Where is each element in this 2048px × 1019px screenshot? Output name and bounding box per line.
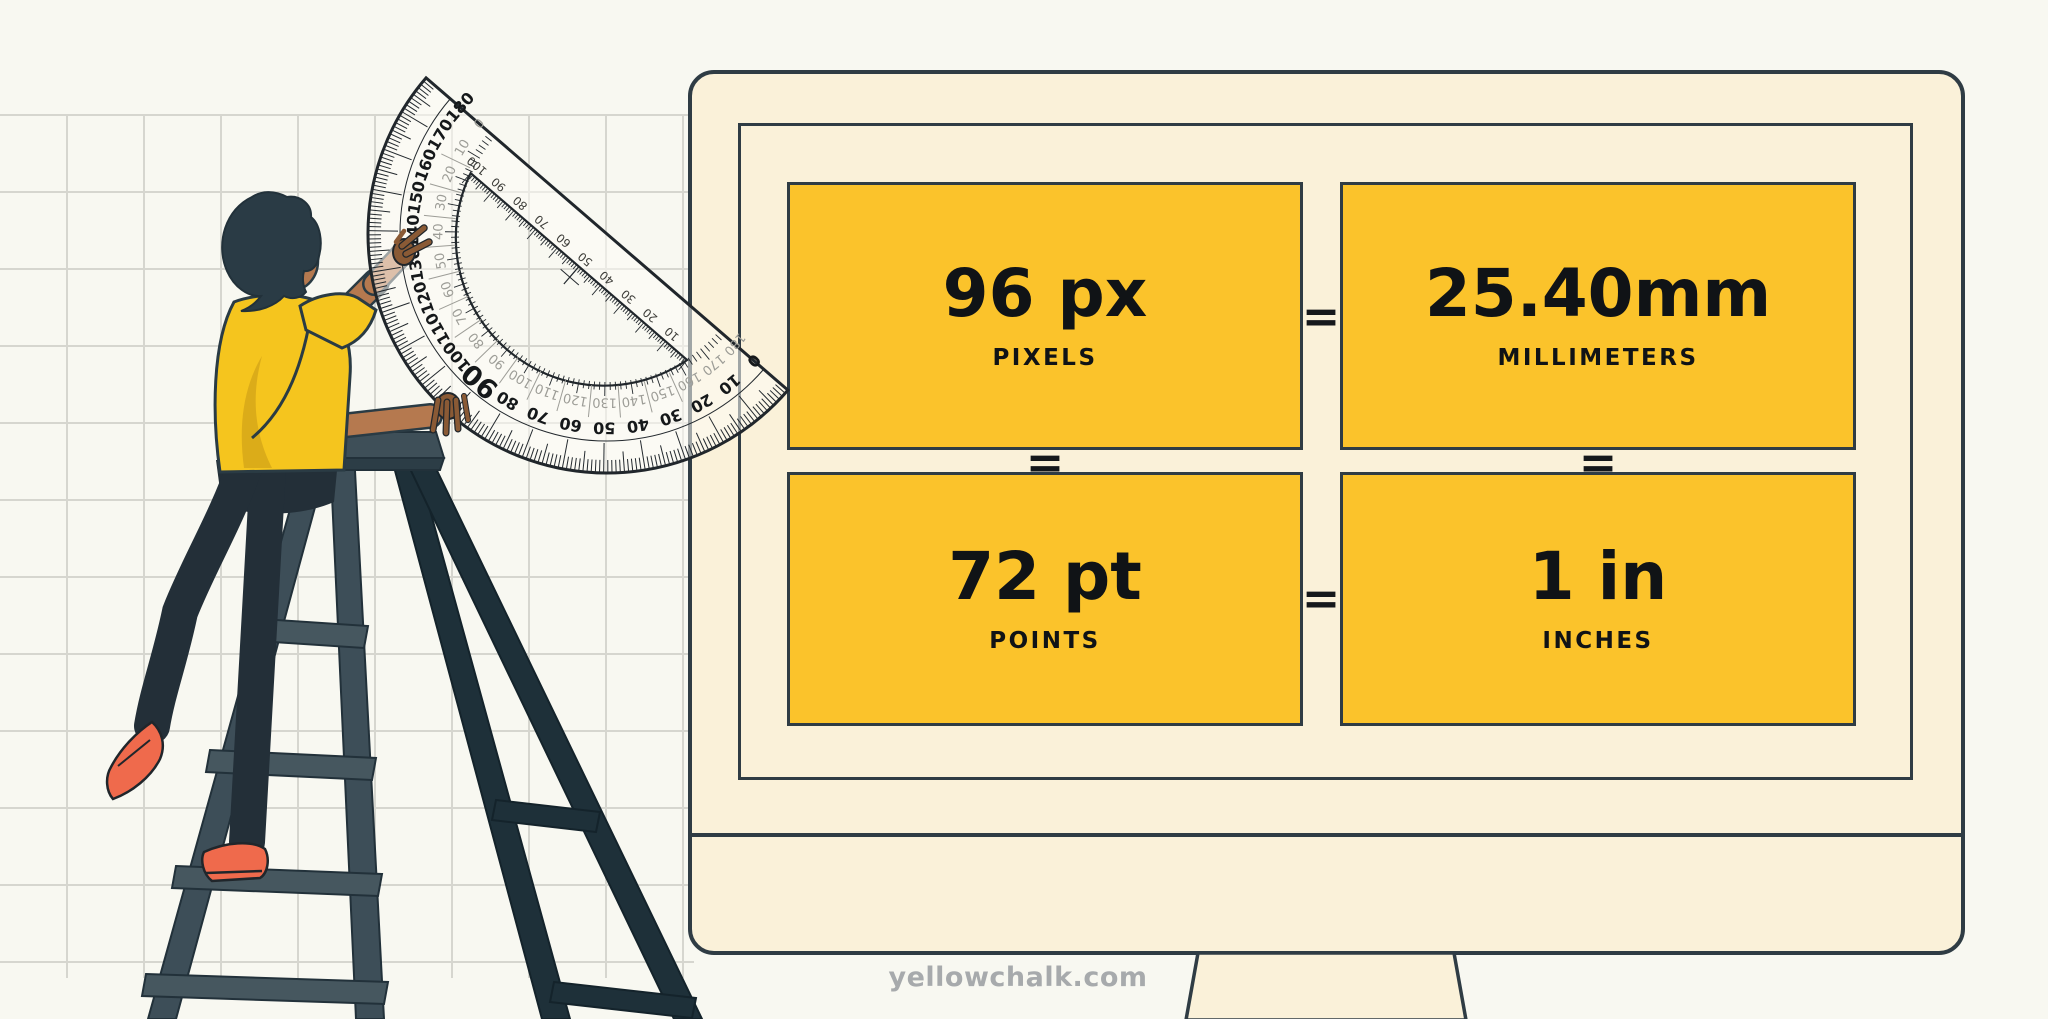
equals-sign: = (1302, 293, 1341, 339)
infographic-canvas: 96 px PIXELS 25.40mm MILLIMETERS 72 pt P… (0, 0, 2048, 1019)
monitor-stand (1186, 953, 1466, 1019)
equals-sign: = (1026, 439, 1065, 485)
conversion-card-pixels: 96 px PIXELS (787, 182, 1303, 450)
conversion-card-millimeters: 25.40mm MILLIMETERS (1340, 182, 1856, 450)
equals-sign: = (1302, 575, 1341, 621)
graph-paper-grid (0, 114, 694, 978)
millimeters-label: MILLIMETERS (1497, 345, 1698, 371)
monitor-frame: 96 px PIXELS 25.40mm MILLIMETERS 72 pt P… (688, 70, 1965, 955)
millimeters-value: 25.40mm (1425, 261, 1771, 327)
pixels-value: 96 px (943, 261, 1148, 327)
inches-label: INCHES (1542, 628, 1653, 654)
conversion-card-inches: 1 in INCHES (1340, 472, 1856, 726)
points-value: 72 pt (948, 544, 1142, 610)
conversion-card-points: 72 pt POINTS (787, 472, 1303, 726)
inches-value: 1 in (1529, 544, 1668, 610)
points-label: POINTS (989, 628, 1100, 654)
site-credit: yellowchalk.com (868, 962, 1168, 993)
pixels-label: PIXELS (992, 345, 1097, 371)
monitor-chin-divider (688, 833, 1965, 837)
equals-sign: = (1579, 439, 1618, 485)
